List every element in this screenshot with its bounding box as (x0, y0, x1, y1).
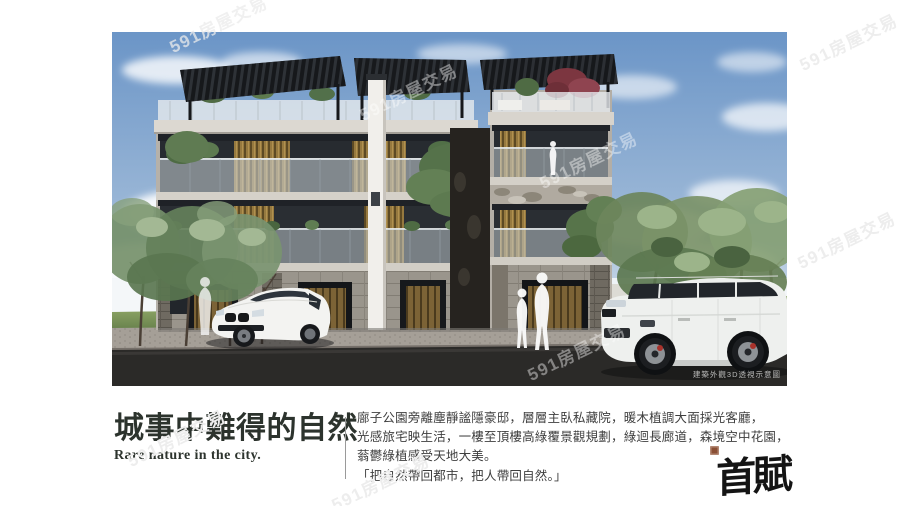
page: 建築外觀3D透視示意圖 城事中難得的自然 Rare nature in the … (0, 0, 900, 506)
hero-caption-text: 建築外觀3D透視示意圖 (693, 369, 781, 380)
description-paragraph: 廍子公園旁離塵靜謐隱豪邸，層層主臥私藏院，暖木植調大面採光客廳， 光感旅宅映生活… (357, 409, 717, 486)
page-title: 城事中難得的自然 (114, 412, 349, 445)
brand-logo: 首賦 (704, 436, 824, 500)
divider (345, 417, 346, 479)
watermark-591: 591房屋交易 (793, 204, 900, 273)
center-column (366, 74, 387, 330)
brand-logo-text: 首賦 (716, 441, 790, 504)
paragraph-line: 「把自然帶回都市，把人帶回自然。」 (357, 467, 717, 486)
title-block: 城事中難得的自然 Rare nature in the city. (114, 412, 349, 464)
paragraph-line: 光感旅宅映生活，一樓至頂樓高綠覆景觀規劃，綠迴長廊道，森境空中花園， (357, 428, 717, 447)
building-render-illustration (112, 32, 787, 386)
paragraph-line: 廍子公園旁離塵靜謐隱豪邸，層層主臥私藏院，暖木植調大面採光客廳， (357, 409, 717, 428)
hero-rendering[interactable]: 建築外觀3D透視示意圖 (112, 32, 787, 386)
watermark-591: 591房屋交易 (795, 6, 900, 75)
page-subtitle: Rare nature in the city. (114, 448, 349, 464)
corner-greenery (165, 131, 209, 163)
paragraph-line: 蓊鬱綠植感受天地大美。 (357, 447, 717, 466)
